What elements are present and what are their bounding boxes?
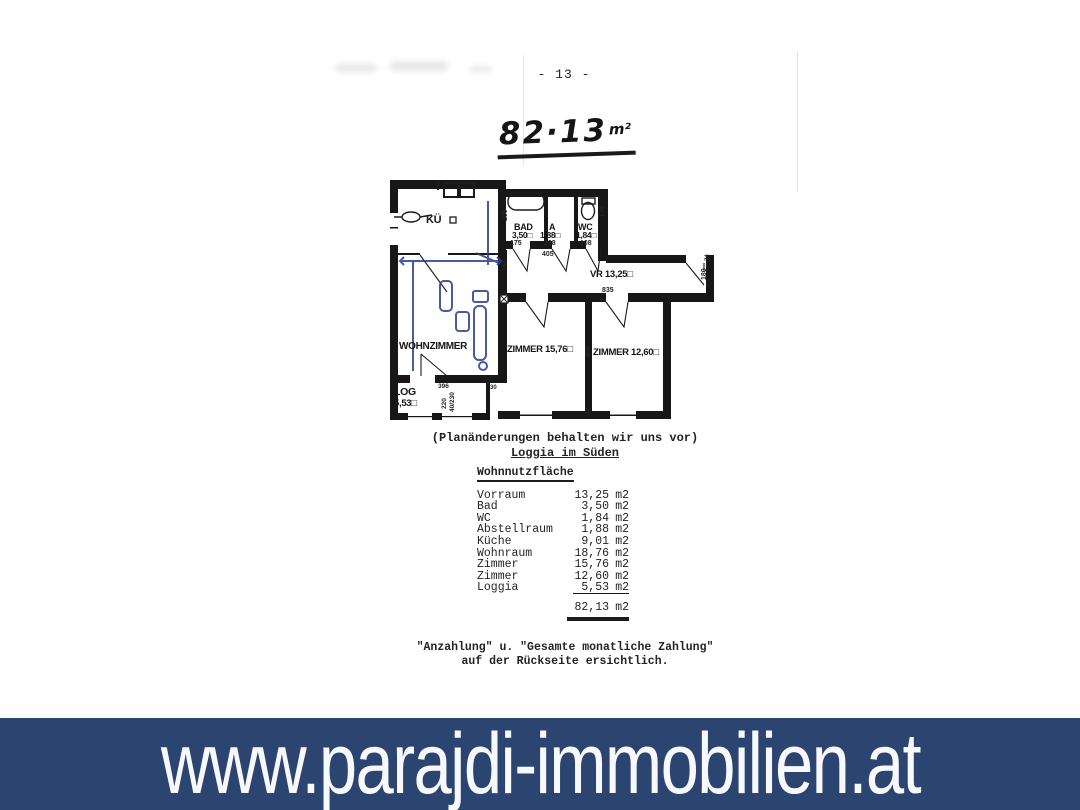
note-loggia-south: Loggia im Süden — [395, 446, 735, 460]
dim-108a: 108 — [544, 240, 556, 247]
total-underline — [567, 617, 629, 621]
website-banner: www.parajdi-immobilien.at — [0, 718, 1080, 810]
table-row: Loggia5,53m2 — [477, 582, 629, 594]
dim-405: 405 — [542, 251, 554, 258]
dim-108b: 108 — [580, 240, 592, 247]
room-area-bad: 3,50□ — [512, 230, 532, 240]
note-plan-changes: (Planänderungen behalten wir uns vor) — [395, 431, 735, 445]
area-table-title: Wohnnutzfläche — [477, 467, 574, 482]
room-area-loggia: 5,53□ — [394, 398, 417, 409]
room-label-loggia: LOG — [394, 386, 416, 398]
room-label-zimmer2: ZIMMER 12,60□ — [593, 347, 659, 358]
dim-450: 450 — [585, 345, 592, 357]
table-total-row: 82,13m2 — [477, 602, 629, 614]
floorplan-drawing: KÜ BAD 3,50□ 175 A 1,88□ 108 WC 1,84□ 10… — [380, 165, 730, 440]
banner-url: www.parajdi-immobilien.at — [160, 715, 919, 810]
room-label-vorraum: VR 13,25□ — [590, 269, 633, 280]
scan-artifact — [390, 61, 448, 71]
dim-170: 170 — [599, 206, 606, 217]
dim-396: 396 — [438, 383, 449, 390]
total-unit: m2 — [609, 602, 629, 614]
footer-note-line2: auf der Rückseite ersichtlich. — [385, 655, 745, 669]
total-value: 82,13 — [573, 602, 609, 614]
page-number: - 13 - — [524, 67, 604, 82]
room-label-kueche: KÜ — [426, 213, 442, 226]
dim-175: 175 — [510, 240, 522, 247]
dim-168: 168 — [501, 260, 508, 271]
footer-note-line1: "Anzahlung" u. "Gesamte monatliche Zahlu… — [385, 641, 745, 655]
dim-180: 180 — [701, 268, 708, 280]
handwritten-total-area: 82·13m² — [496, 112, 636, 160]
toilet-icon — [582, 203, 595, 220]
dim-30a: 30 — [490, 385, 497, 391]
scan-artifact — [470, 66, 492, 72]
handwritten-unit: m² — [609, 120, 632, 139]
scan-crease — [797, 52, 798, 192]
dim-30b: 30 — [586, 408, 592, 415]
sink-icon — [402, 212, 420, 222]
scanned-floorplan-page: - 13 - 82·13m² — [0, 0, 1080, 810]
footer-note: "Anzahlung" u. "Gesamte monatliche Zahlu… — [385, 641, 745, 669]
dim-200: 200 — [502, 209, 509, 221]
table-row: Zimmer15,76m2 — [477, 559, 629, 571]
room-area-wc: 1,84□ — [576, 230, 596, 240]
room-label-wohnzimmer: WOHNZIMMER — [399, 341, 468, 352]
dim-74: 74 — [705, 254, 711, 261]
room-label-zimmer1: ZIMMER 15,76□ — [507, 344, 573, 355]
dim-835: 835 — [602, 287, 614, 294]
scan-artifact — [335, 64, 377, 72]
floorplan-fixtures — [394, 180, 595, 303]
handwritten-value: 82·13 — [498, 113, 607, 153]
table-row: Küche9,01m2 — [477, 536, 629, 548]
dim-40-230: 40/230 — [449, 392, 456, 412]
area-table: Wohnnutzfläche Vorraum13,25m2 Bad3,50m2 … — [477, 467, 629, 621]
room-area-abstellraum: 1,88□ — [540, 230, 560, 240]
dim-220: 220 — [441, 398, 448, 409]
